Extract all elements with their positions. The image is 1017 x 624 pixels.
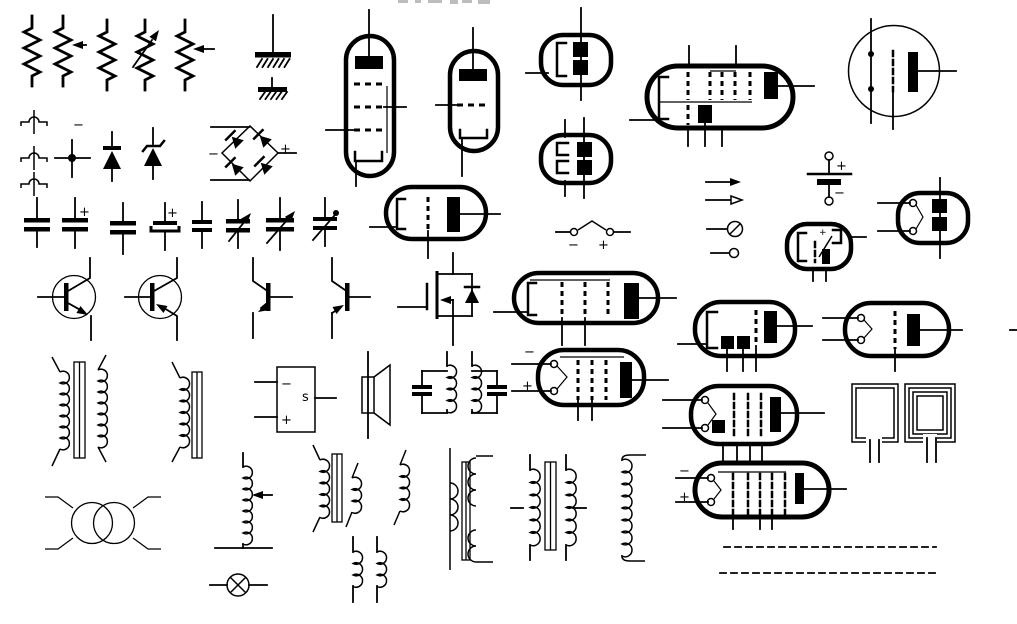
tube-with-switch-contact: + bbox=[787, 224, 866, 281]
capacitor-electrolytic: + bbox=[151, 203, 179, 250]
double-tuned-lc-circuit bbox=[412, 352, 507, 413]
small-inductor bbox=[394, 450, 410, 525]
pentode-tube-horizontal bbox=[494, 273, 676, 345]
schematic-symbols-sheet: − − + + + bbox=[0, 0, 1017, 624]
center-tapped-transformer bbox=[511, 455, 586, 560]
potentiometer bbox=[55, 16, 86, 86]
bridge-minus: − bbox=[208, 147, 219, 162]
round-tube bbox=[849, 19, 957, 129]
pnp-transistor bbox=[332, 258, 370, 338]
indicator-lamp bbox=[210, 574, 267, 596]
diode bbox=[103, 132, 121, 181]
loop-antenna-multi bbox=[905, 384, 955, 462]
triode-tube-vertical bbox=[436, 28, 498, 176]
loop-antenna-single bbox=[852, 384, 898, 462]
tube-minus: − bbox=[524, 345, 535, 360]
contact-plus: + bbox=[598, 238, 609, 253]
bridge-rectifier: − + bbox=[208, 126, 296, 181]
pentode-tube-vertical bbox=[326, 10, 406, 186]
npn-transistor bbox=[253, 258, 292, 338]
wire-jump-2 bbox=[21, 146, 47, 170]
iron-core-transformer-2 bbox=[313, 445, 362, 532]
choke-with-core bbox=[172, 362, 202, 462]
vibrator-contact: − + bbox=[556, 221, 630, 253]
multigrid-filament-tube bbox=[663, 386, 824, 460]
wire-junction-dot bbox=[55, 140, 90, 177]
fixed-resistor-2 bbox=[99, 20, 115, 90]
iron-core-transformer bbox=[52, 355, 107, 466]
cap-plus: + bbox=[79, 205, 90, 220]
earth-ground bbox=[255, 15, 291, 67]
wire-jump-3 bbox=[21, 172, 47, 196]
arrow-solid bbox=[706, 178, 741, 186]
opamp-s: s bbox=[302, 390, 309, 405]
filament-triode-tube: − + bbox=[512, 345, 668, 420]
npn-transistor-circled bbox=[38, 258, 96, 340]
full-wave-rectifier-tube bbox=[878, 178, 968, 258]
filament-triode-tube-2 bbox=[823, 303, 1017, 371]
capacitor-fixed-2 bbox=[110, 203, 136, 254]
fixed-resistor-1 bbox=[24, 16, 40, 86]
cropped-text-fragment bbox=[398, 0, 490, 4]
capacitor-polarized: + bbox=[62, 198, 90, 248]
rf-transformer-tapped bbox=[450, 448, 493, 570]
beam-power-tube bbox=[678, 302, 812, 371]
zener-diode bbox=[143, 128, 164, 179]
tall-solenoid-coil bbox=[622, 455, 646, 561]
arrow-open bbox=[706, 196, 742, 204]
variable-resistor bbox=[133, 20, 162, 90]
circle-terminal bbox=[711, 249, 739, 258]
cap-plus: + bbox=[167, 206, 178, 221]
capacitor-fixed-small bbox=[192, 202, 212, 248]
triode-tube-horizontal bbox=[370, 187, 500, 258]
switch-plus: + bbox=[819, 228, 827, 238]
speaker bbox=[362, 352, 390, 438]
capacitor-trimmer bbox=[313, 198, 339, 246]
chassis-ground bbox=[258, 78, 287, 99]
capacitor-fixed-1 bbox=[24, 198, 50, 247]
battery-plus: + bbox=[836, 159, 847, 174]
rheostat bbox=[177, 20, 214, 90]
dual-diode-tube-2 bbox=[541, 118, 611, 198]
capacitor-variable-1 bbox=[226, 200, 254, 248]
pnp-transistor-circled bbox=[125, 258, 182, 340]
bridge-plus: + bbox=[280, 142, 291, 157]
battery: + − bbox=[808, 152, 851, 205]
contact-minus: − bbox=[568, 238, 579, 253]
minus-mark: − bbox=[73, 118, 84, 133]
dual-diode-tube-1 bbox=[526, 8, 611, 100]
pentagrid-converter-tube bbox=[630, 46, 814, 146]
inductor-pair bbox=[353, 537, 387, 602]
opamp-block: − + s bbox=[255, 367, 336, 432]
capacitor-variable-2 bbox=[266, 198, 298, 250]
air-core-transformer bbox=[45, 497, 161, 549]
tube-minus: − bbox=[679, 464, 690, 479]
opamp-plus: + bbox=[281, 413, 292, 428]
crossed-circle-terminal bbox=[707, 222, 743, 237]
slider-tapped-coil bbox=[215, 453, 272, 548]
wire-jump-1 bbox=[21, 110, 47, 134]
battery-minus: − bbox=[834, 186, 845, 201]
opamp-minus: − bbox=[281, 377, 292, 392]
mosfet-with-body-diode bbox=[398, 253, 479, 345]
filament-pentagrid-tube: − + bbox=[676, 463, 846, 529]
